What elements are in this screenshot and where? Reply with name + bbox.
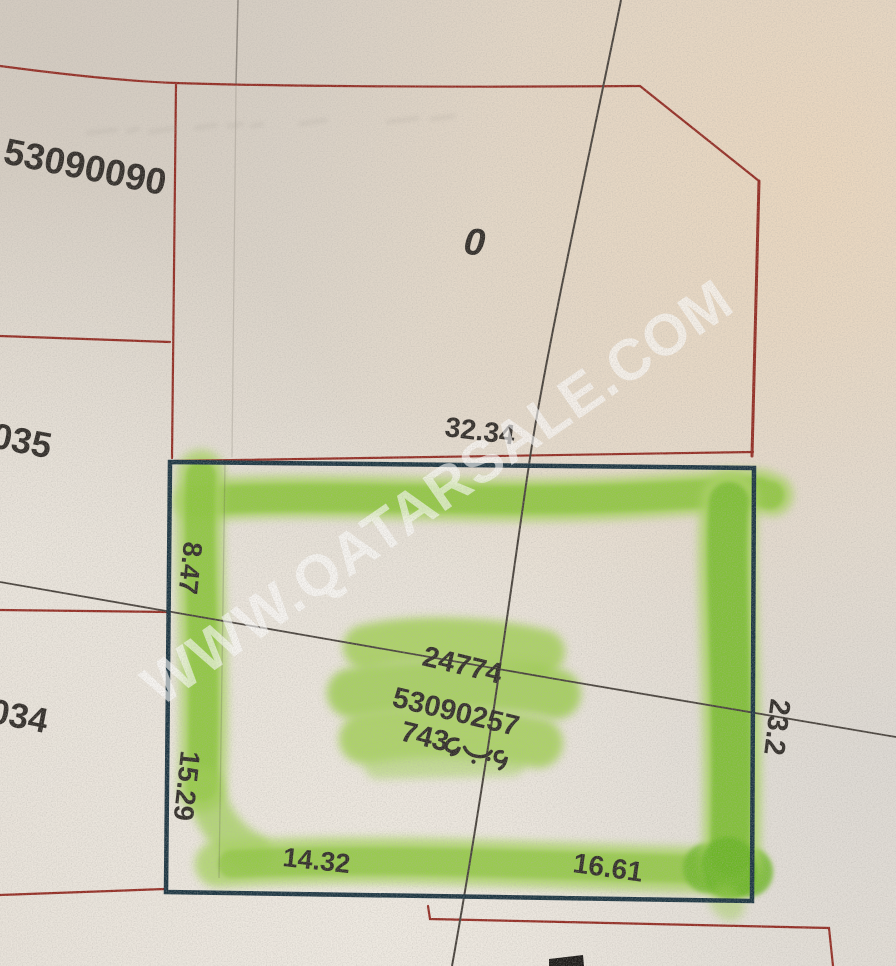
svg-text:23.2: 23.2 (757, 697, 796, 757)
svg-text:8.47: 8.47 (173, 540, 208, 595)
